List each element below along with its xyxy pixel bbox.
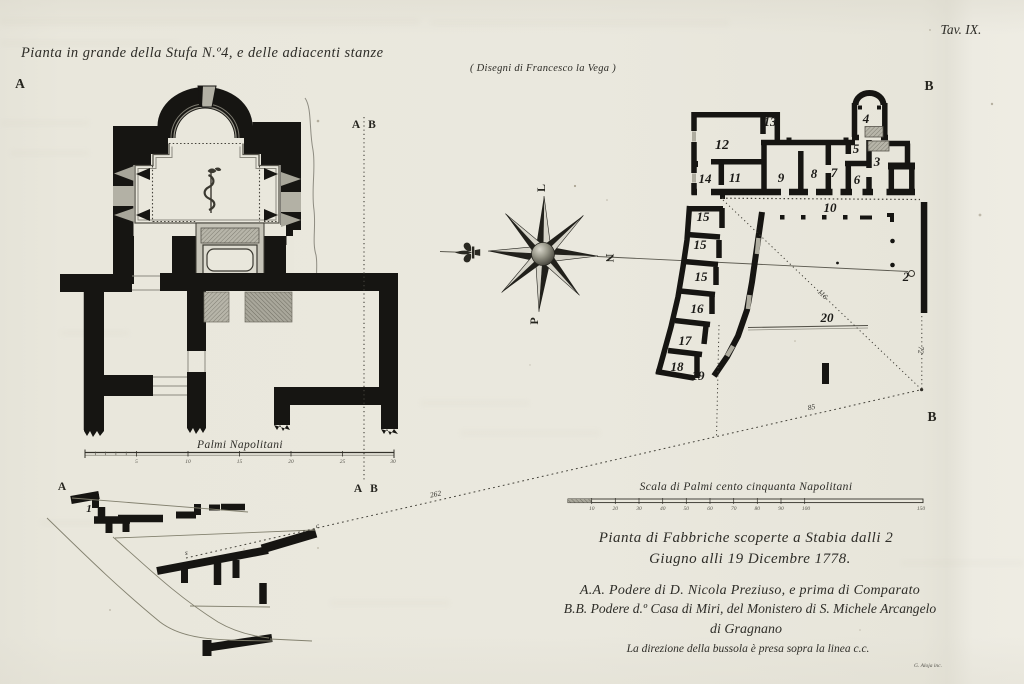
svg-text:B: B: [368, 119, 376, 131]
svg-text:30: 30: [635, 506, 642, 512]
svg-text:15: 15: [237, 459, 243, 465]
svg-text:80: 80: [755, 506, 761, 512]
svg-text:11: 11: [729, 170, 741, 185]
svg-text:B: B: [370, 483, 378, 495]
svg-text:150: 150: [917, 506, 926, 512]
svg-text:Pianta in grande della Stufa N: Pianta in grande della Stufa N.º4, e del…: [20, 45, 384, 61]
svg-text:G. Aloja inc.: G. Aloja inc.: [914, 663, 942, 669]
svg-text:3: 3: [873, 154, 881, 169]
svg-text:9: 9: [778, 170, 785, 185]
svg-text:A: A: [15, 76, 25, 91]
svg-text:20: 20: [288, 459, 294, 465]
svg-text:10: 10: [185, 459, 191, 465]
svg-text:Tav. IX.: Tav. IX.: [941, 22, 982, 37]
svg-text:8: 8: [811, 166, 818, 181]
svg-text:30: 30: [389, 459, 396, 465]
svg-text:B: B: [924, 78, 933, 93]
svg-text:7: 7: [831, 165, 838, 180]
svg-text:10: 10: [824, 200, 838, 215]
svg-text:( Disegni di Francesco la Vega: ( Disegni di Francesco la Vega ): [470, 63, 616, 74]
svg-text:40: 40: [660, 505, 666, 512]
svg-text:16: 16: [691, 301, 705, 316]
svg-text:Palmi Napolitani: Palmi Napolitani: [196, 439, 283, 451]
svg-text:15: 15: [694, 237, 708, 252]
svg-text:1: 1: [86, 503, 92, 515]
svg-text:14: 14: [699, 171, 713, 186]
svg-text:4: 4: [862, 111, 870, 126]
svg-text:A: A: [354, 483, 363, 495]
svg-text:Giugno alli 19 Dicembre 1778.: Giugno alli 19 Dicembre 1778.: [649, 551, 851, 567]
svg-text:15: 15: [695, 269, 709, 284]
svg-text:5: 5: [853, 141, 860, 156]
svg-text:60: 60: [707, 506, 713, 512]
svg-text:A: A: [352, 119, 361, 131]
svg-text:90: 90: [778, 506, 784, 512]
svg-text:s: s: [185, 549, 188, 557]
svg-text:A.A. Podere di D. Nicola Prezi: A.A. Podere di D. Nicola Preziuso, e pri…: [579, 583, 920, 598]
svg-text:Scala di Palmi cento cinquanta: Scala di Palmi cento cinquanta Napolitan…: [640, 481, 853, 493]
svg-text:72: 72: [917, 346, 926, 354]
svg-text:di Gragnano: di Gragnano: [710, 622, 782, 637]
svg-text:L: L: [534, 184, 548, 192]
svg-text:20: 20: [613, 506, 619, 512]
svg-text:La direzione della bussola è p: La direzione della bussola è presa sopra…: [626, 643, 870, 655]
svg-text:N: N: [603, 254, 617, 263]
svg-text:50: 50: [684, 506, 690, 512]
svg-text:10: 10: [589, 506, 595, 512]
svg-text:A: A: [58, 481, 67, 493]
svg-text:Pianta di Fabbriche scoperte a: Pianta di Fabbriche scoperte a Stabia da…: [598, 530, 894, 546]
svg-text:5: 5: [135, 459, 138, 465]
svg-text:20: 20: [820, 310, 835, 325]
svg-text:12: 12: [715, 138, 729, 153]
svg-text:25: 25: [340, 459, 346, 465]
svg-text:B.B. Podere d.º Casa di Miri,: B.B. Podere d.º Casa di Miri, del Monist…: [564, 601, 937, 616]
svg-text:70: 70: [731, 506, 737, 512]
svg-text:100: 100: [802, 506, 811, 512]
svg-text:6: 6: [854, 172, 861, 187]
svg-text:P: P: [527, 317, 541, 324]
svg-text:17: 17: [679, 333, 693, 348]
svg-text:2: 2: [902, 269, 910, 284]
svg-text:13: 13: [764, 114, 778, 129]
svg-text:B: B: [927, 409, 936, 424]
